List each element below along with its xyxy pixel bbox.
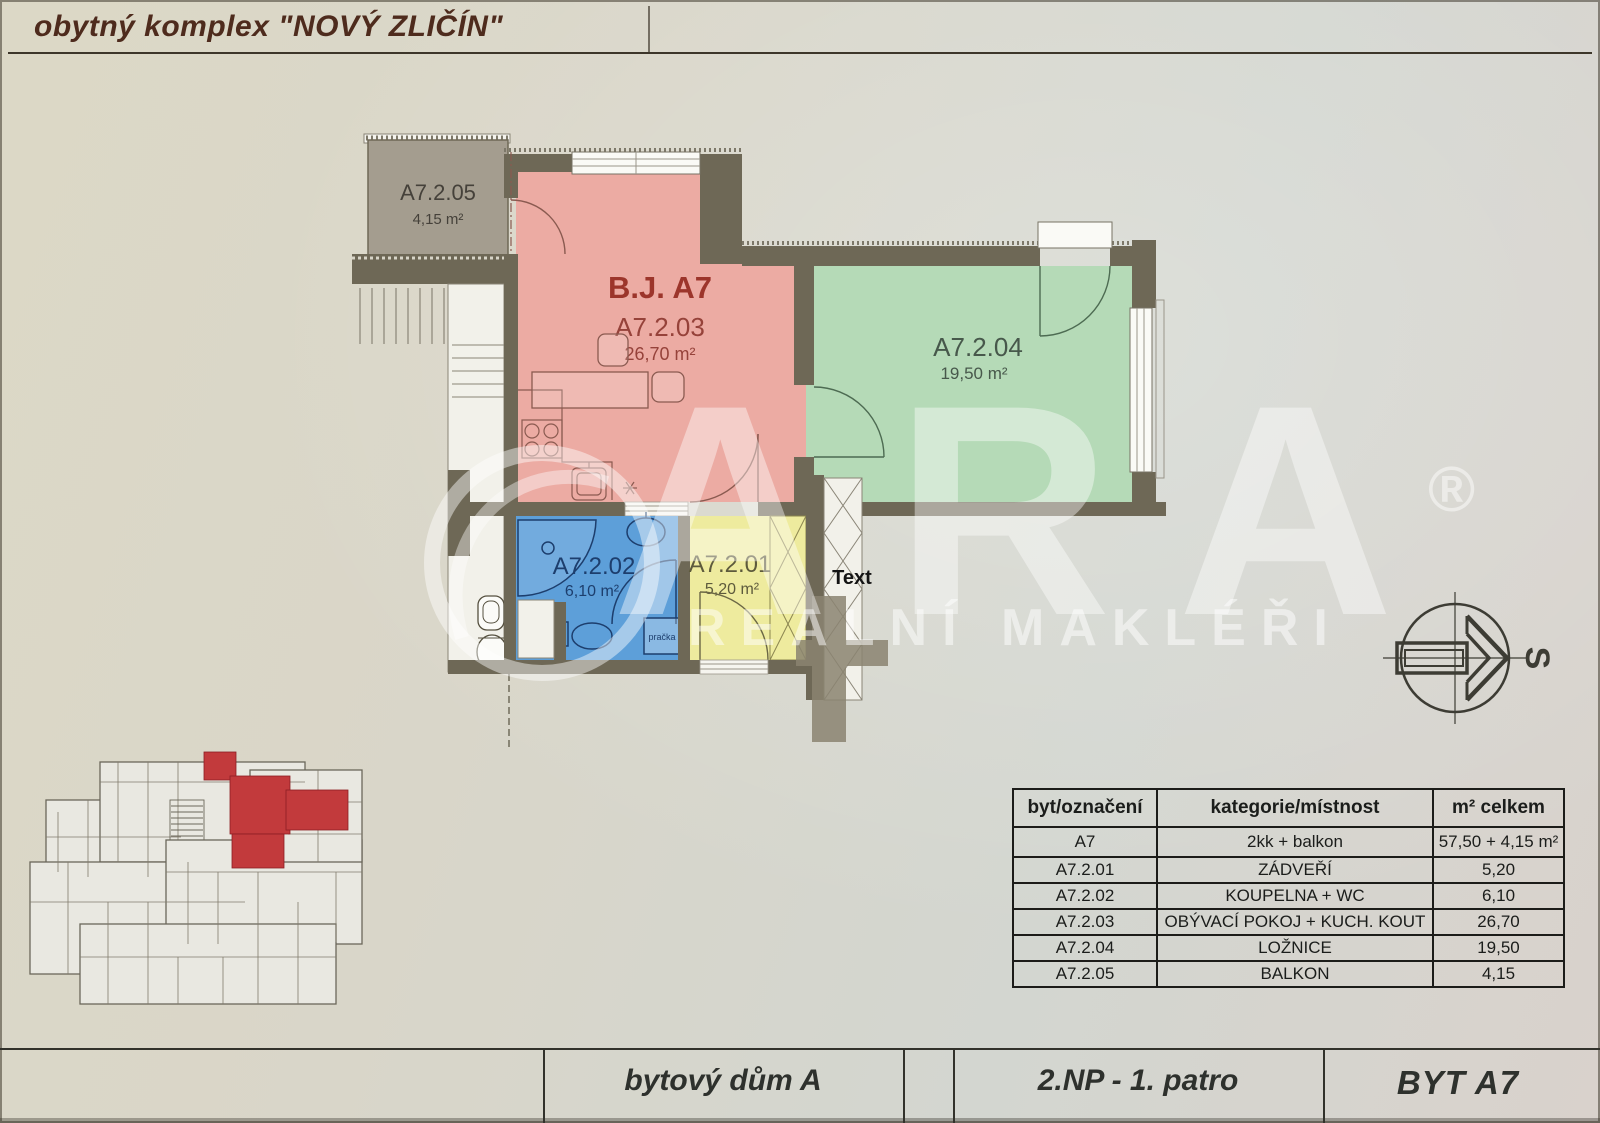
room-bathroom-id: A7.2.02 [553,553,636,580]
text-annotation: Text [832,567,872,589]
cell-designation: A7.2.02 [1013,883,1157,909]
main-plan: A7.2.05 4,15 m² [352,134,1166,748]
cell-category: ZÁDVEŘÍ [1157,857,1433,883]
col-header-area: m² celkem [1433,789,1564,827]
unit-label: B.J. A7 [608,270,712,305]
room-bedroom-id: A7.2.04 [933,332,1023,362]
room-living-id: A7.2.03 [615,312,705,342]
cell-category: BALKON [1157,961,1433,987]
cell-designation: A7.2.04 [1013,935,1157,961]
cell-category: OBÝVACÍ POKOJ + KUCH. KOUT [1157,909,1433,935]
footer-floor-label: 2.NP - 1. patro [953,1064,1323,1098]
cell-area: 4,15 [1433,961,1564,987]
footer-divider [903,1050,905,1123]
floorplan-sheet: obytný komplex "NOVÝ ZLIČÍN" A7.2.05 4,1… [0,0,1600,1123]
cell-designation: A7.2.05 [1013,961,1157,987]
table-row: A7.2.03 OBÝVACÍ POKOJ + KUCH. KOUT 26,70 [1013,909,1564,935]
balcony-railing [360,288,456,344]
footer-building-label: bytový dům A [543,1064,903,1098]
table-header-row: byt/označení kategorie/místnost m² celke… [1013,789,1564,827]
cell-category: KOUPELNA + WC [1157,883,1433,909]
overview-plan [30,752,362,1004]
compass-icon: S [1383,592,1556,724]
living-window [572,152,700,174]
room-balcony-id: A7.2.05 [400,180,476,205]
col-header-designation: byt/označení [1013,789,1157,827]
room-bathroom: pračka A7.2.02 6,10 m² [516,512,680,660]
footer-unit-label: BYT A7 [1323,1064,1593,1102]
cell-area: 19,50 [1433,935,1564,961]
room-balcony-area: 4,15 m² [413,211,464,228]
cell-area: 5,20 [1433,857,1564,883]
col-header-category: kategorie/místnost [1157,789,1433,827]
room-bedroom-area: 19,50 m² [940,364,1007,383]
cell-area: 6,10 [1433,883,1564,909]
table-row: A7.2.02 KOUPELNA + WC 6,10 [1013,883,1564,909]
bottom-wall [448,660,824,748]
stair-shaft [448,284,508,672]
cell-area: 26,70 [1433,909,1564,935]
cell-designation: A7.2.01 [1013,857,1157,883]
footer-title-block: bytový dům A 2.NP - 1. patro BYT A7 [0,1048,1600,1123]
room-hall-area: 5,20 m² [705,581,760,598]
cell-designation: A7 [1013,827,1157,857]
cell-category: LOŽNICE [1157,935,1433,961]
cell-category: 2kk + balkon [1157,827,1433,857]
room-hall: A7.2.01 5,20 m² [678,516,806,660]
table-row: A7.2.01 ZÁDVEŘÍ 5,20 [1013,857,1564,883]
table-row: A7.2.05 BALKON 4,15 [1013,961,1564,987]
table-row: A7 2kk + balkon 57,50 + 4,15 m² [1013,827,1564,857]
compass-letter: S [1518,647,1556,670]
room-living-area: 26,70 m² [624,344,695,364]
bedroom-window [1130,300,1164,478]
washing-machine-symbol: pračka [644,618,680,654]
table-row: A7.2.04 LOŽNICE 19,50 [1013,935,1564,961]
cell-designation: A7.2.03 [1013,909,1157,935]
room-bathroom-area: 6,10 m² [565,583,620,600]
cell-area: 57,50 + 4,15 m² [1433,827,1564,857]
room-hall-id: A7.2.01 [689,551,772,578]
room-bedroom: A7.2.04 19,50 m² [742,222,1164,502]
washer-label: pračka [648,632,675,642]
room-area-table: byt/označení kategorie/místnost m² celke… [1012,788,1565,988]
